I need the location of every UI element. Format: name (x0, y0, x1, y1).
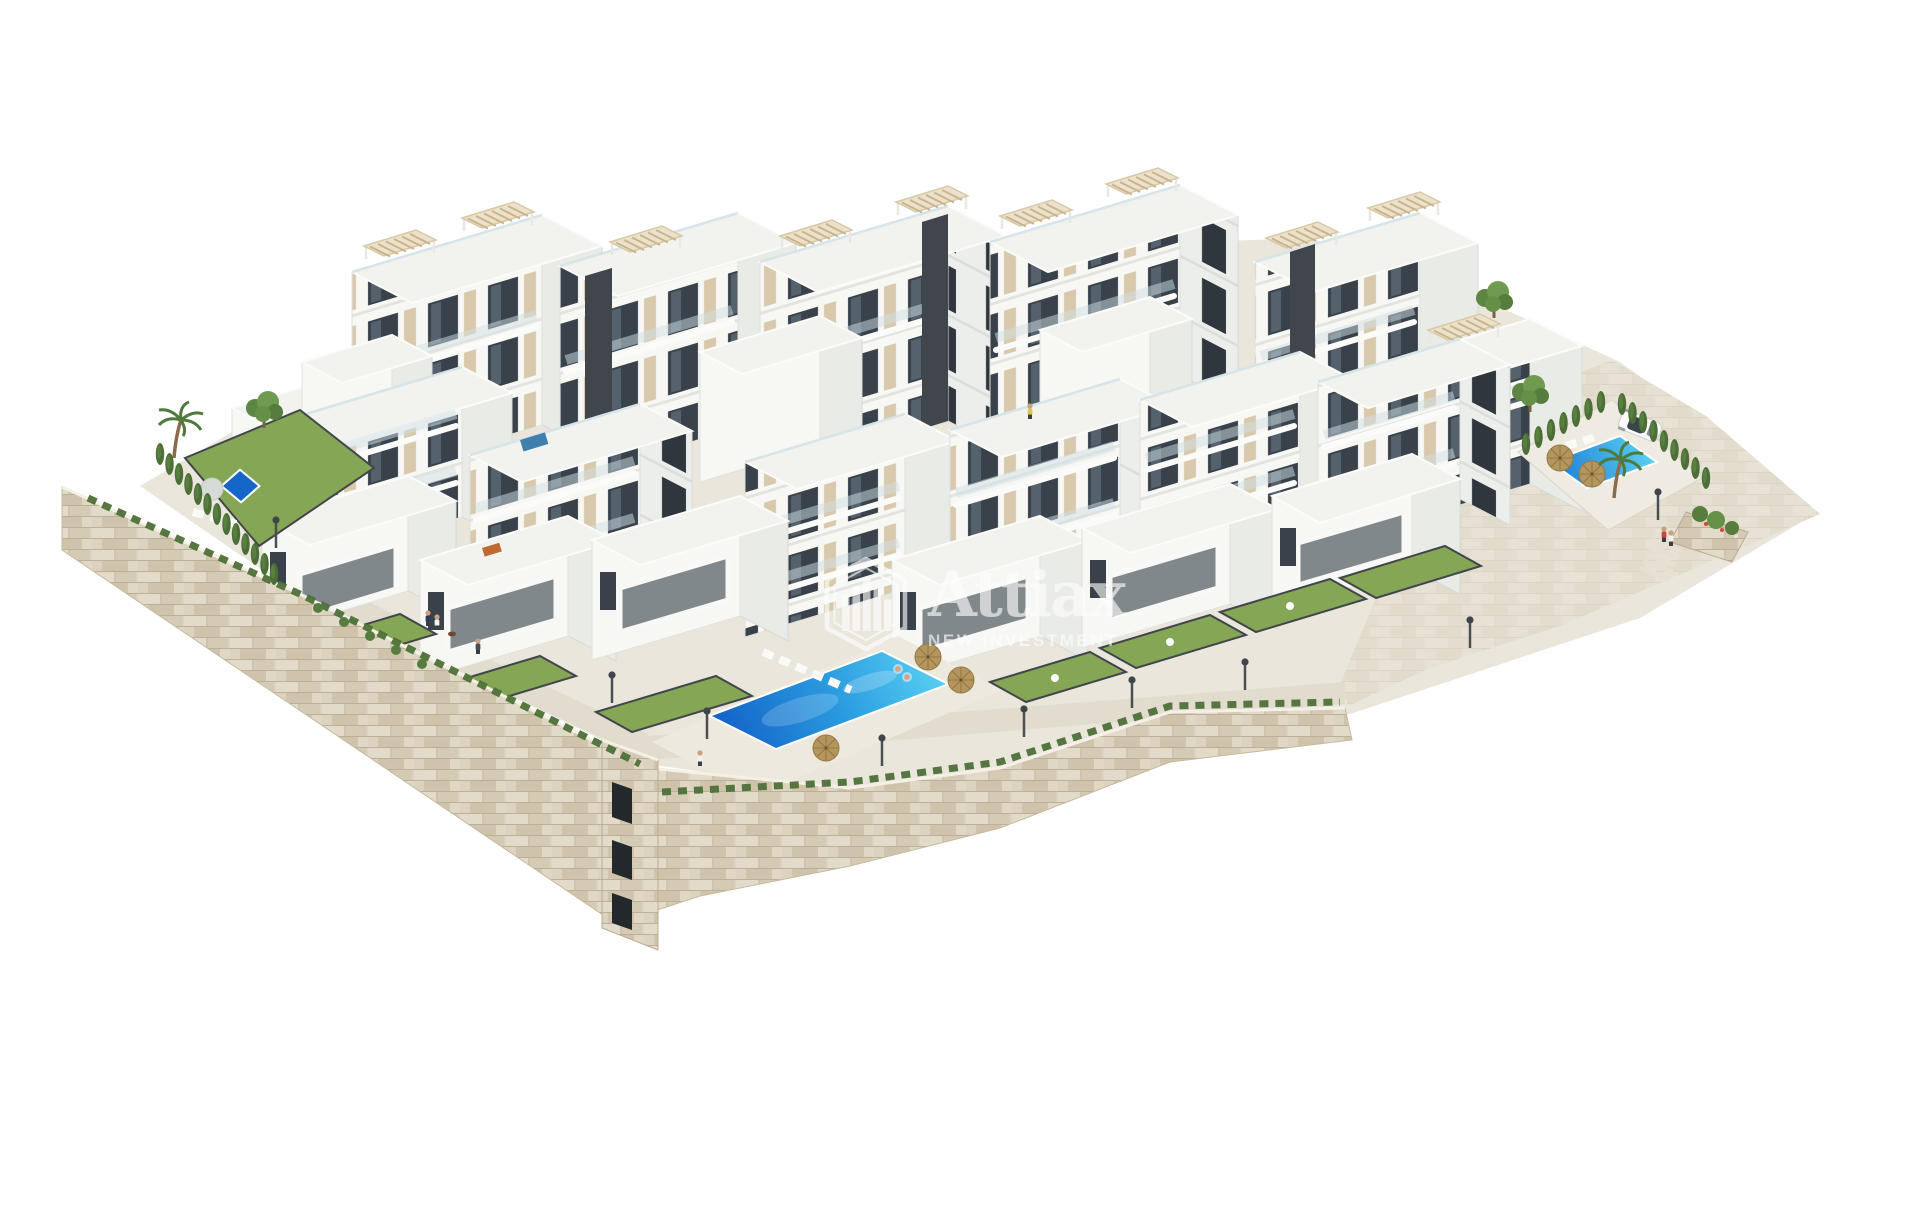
palm-tree-left (159, 402, 203, 458)
villa-window (600, 572, 616, 610)
garden-dining-set (1286, 602, 1294, 610)
garden-dining-set (1051, 674, 1059, 682)
villa-window (1280, 528, 1296, 566)
wall-staircase-tower (602, 740, 658, 950)
garden-parasol (201, 478, 223, 500)
pool-umbrella (1547, 445, 1573, 471)
garden-dining-set (1166, 638, 1174, 646)
dog (448, 632, 456, 637)
pool-umbrella (915, 644, 941, 670)
pool-umbrella (813, 735, 839, 761)
villa-window (1090, 560, 1106, 598)
render-canvas: Attiax NEW INVESTMENT (0, 0, 1920, 1223)
site-render (0, 0, 1920, 1223)
pool-umbrella (948, 667, 974, 693)
villa-window (900, 592, 916, 630)
stair-core (922, 214, 948, 429)
